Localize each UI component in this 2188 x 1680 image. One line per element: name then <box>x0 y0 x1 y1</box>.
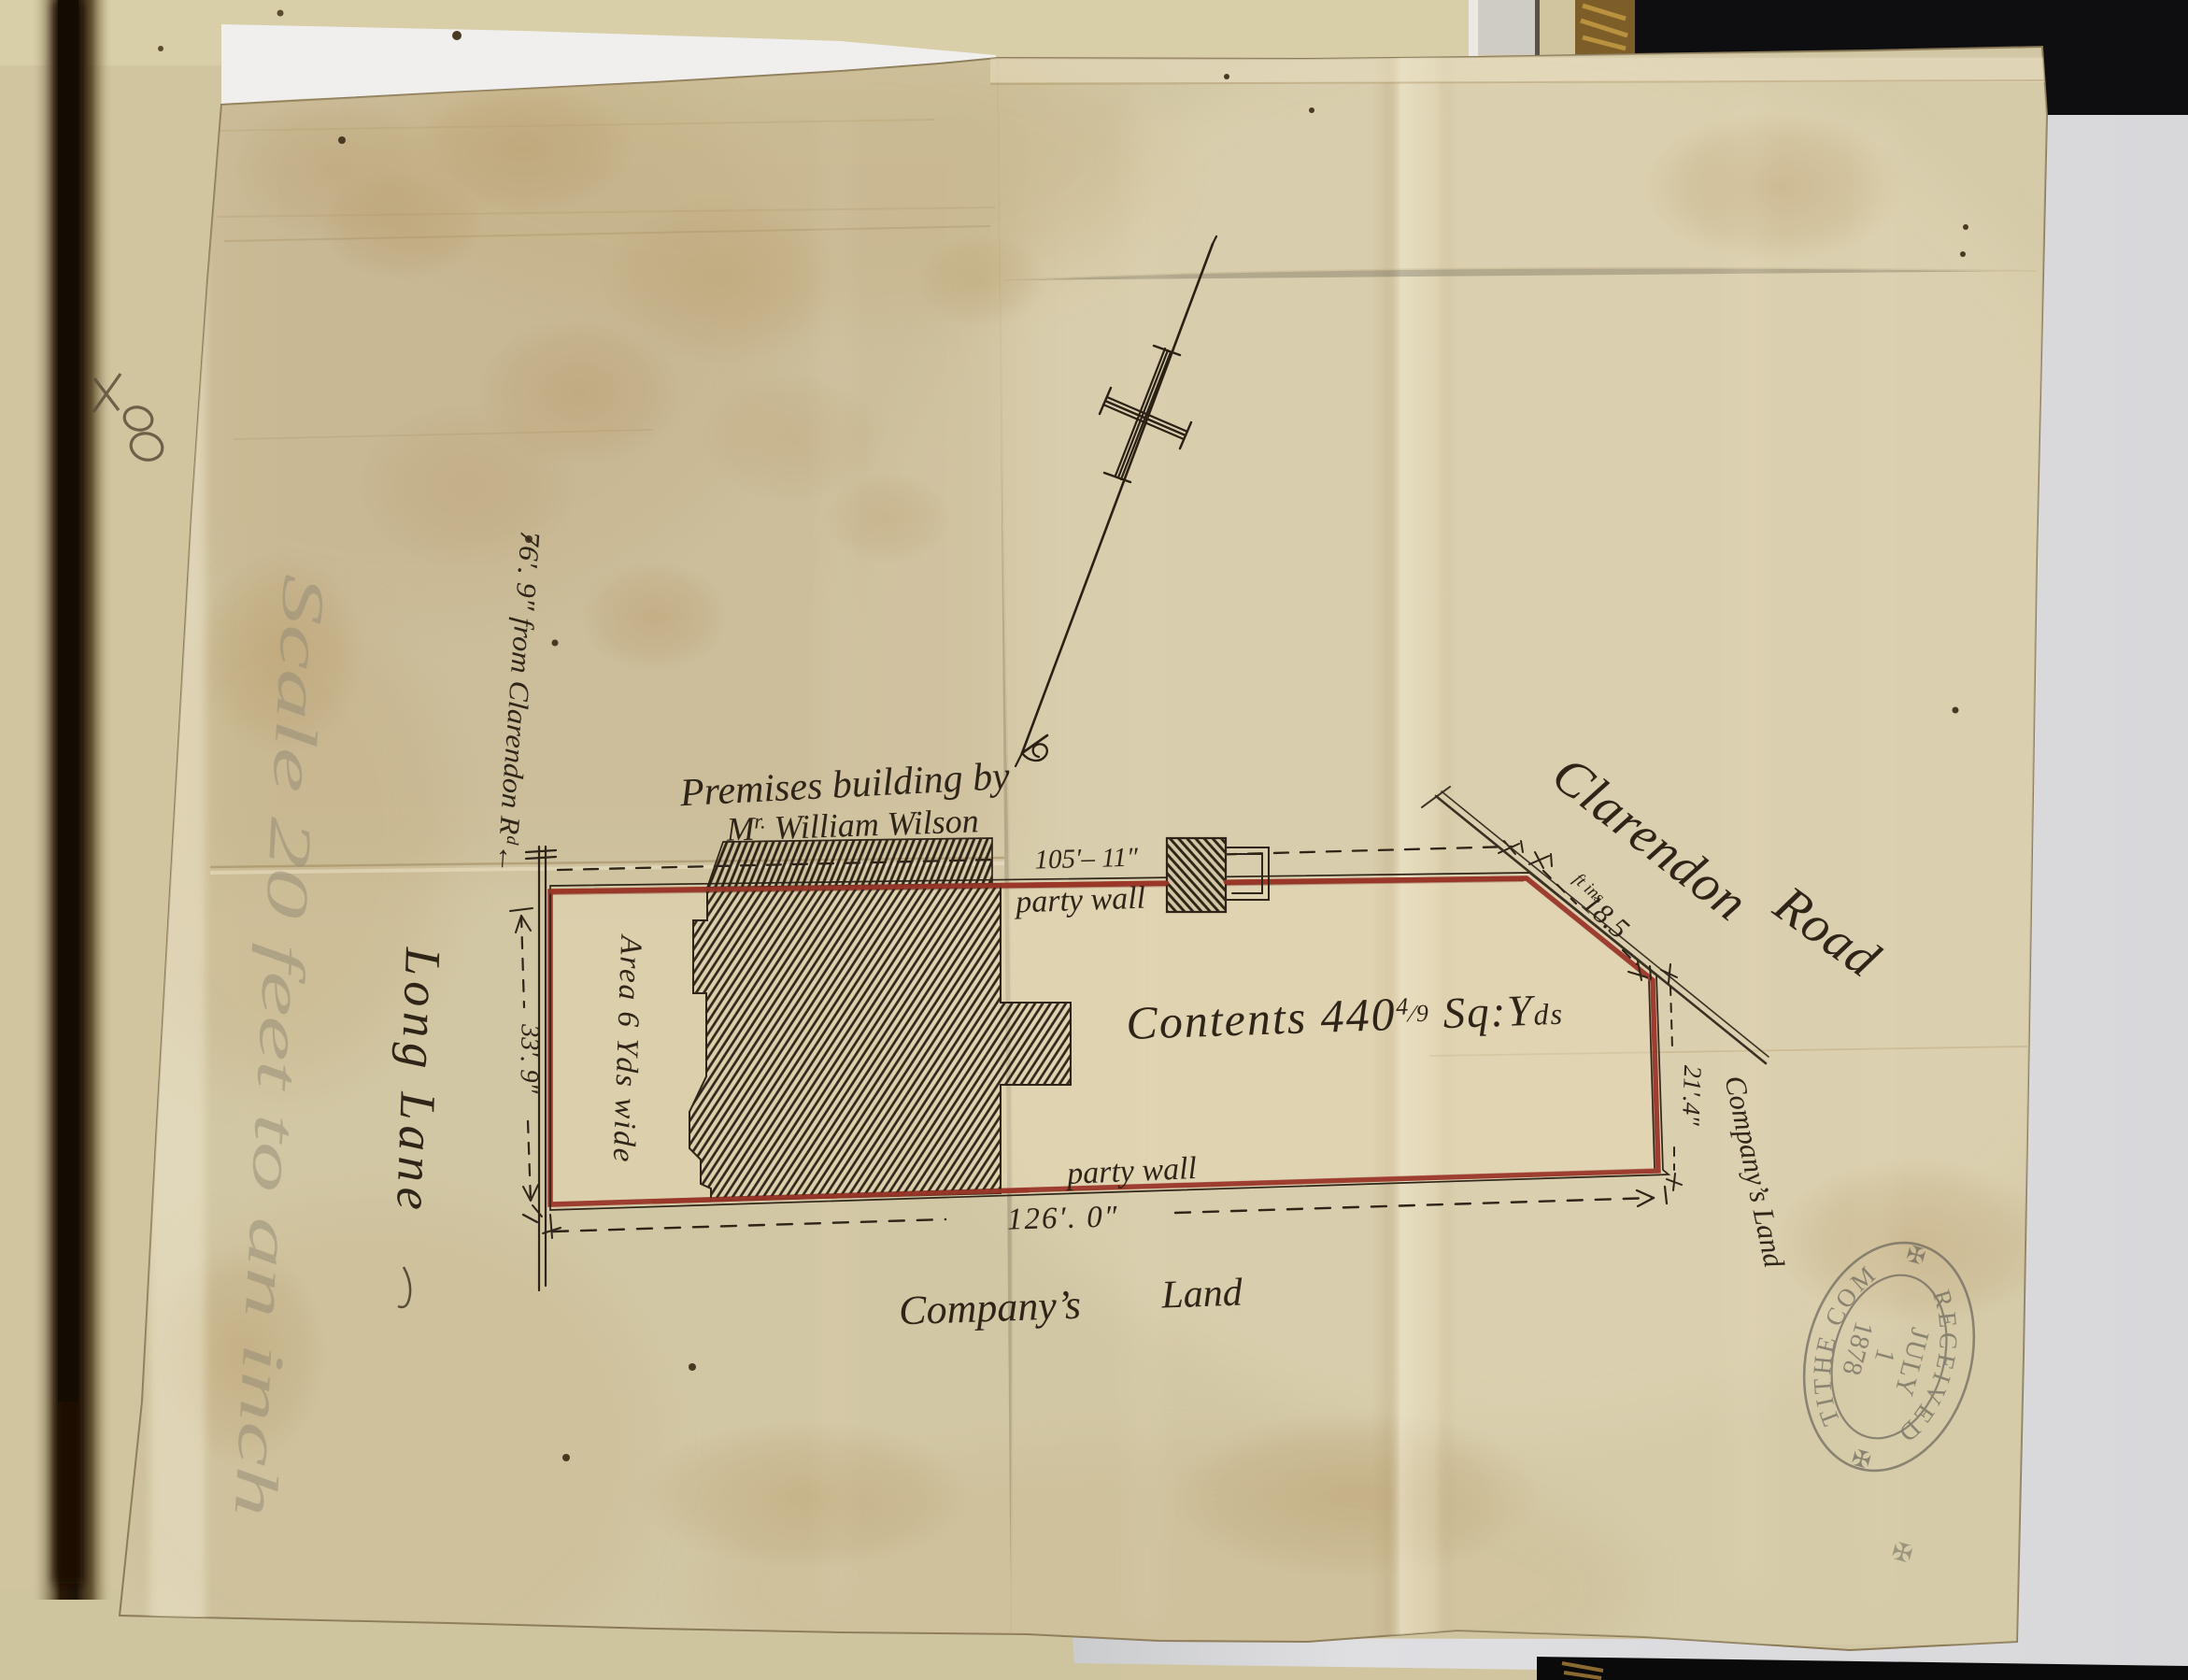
svg-text:33′. 9″: 33′. 9″ <box>514 1023 544 1094</box>
svg-text:party wall: party wall <box>1064 1151 1197 1191</box>
svg-text:Company’s: Company’s <box>898 1282 1081 1334</box>
svg-text:Land: Land <box>1160 1271 1244 1317</box>
svg-text:Long Lane: Long Lane <box>386 946 451 1216</box>
svg-text:105′– 11″: 105′– 11″ <box>1034 843 1139 876</box>
svg-text:party wall: party wall <box>1014 881 1146 920</box>
svg-text:126′. 0″: 126′. 0″ <box>1007 1200 1119 1236</box>
svg-text:21′.4″: 21′.4″ <box>1677 1065 1707 1127</box>
